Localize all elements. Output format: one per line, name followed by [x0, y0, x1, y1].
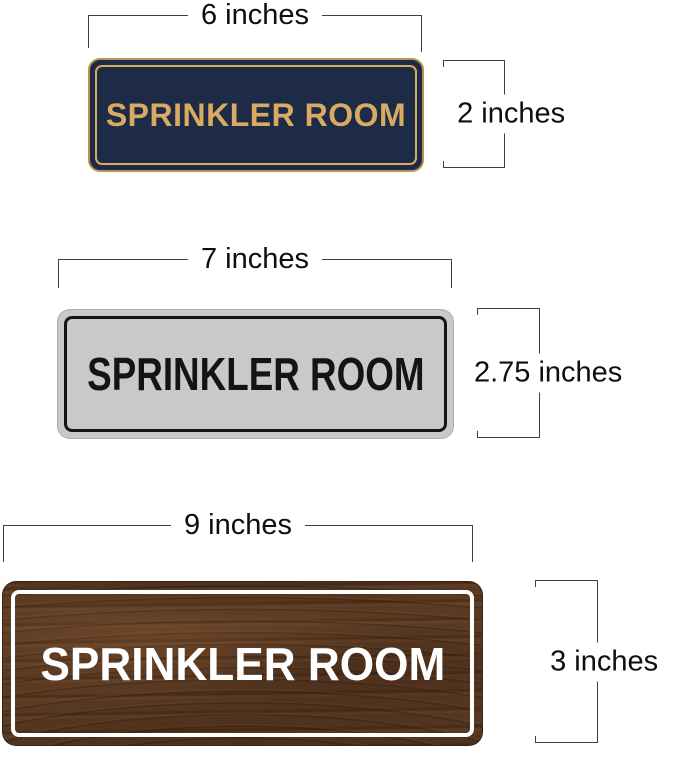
dimension-rail: [443, 60, 505, 61]
height-dimension-2in: 2 inches: [443, 60, 505, 168]
dimension-tick: [472, 525, 473, 562]
sign-text: SPRINKLER ROOM: [40, 641, 445, 687]
sign-size-comparison-diagram: 6 inches SPRINKLER ROOM 2 inches 7 inche…: [0, 0, 679, 757]
dimension-tick: [451, 259, 452, 288]
dimension-line-segment: [322, 15, 422, 16]
height-dimension-label: 2.75 inches: [467, 354, 629, 393]
sprinkler-sign-wood: SPRINKLER ROOM: [3, 582, 482, 745]
height-dimension-2-75in: 2.75 inches: [477, 308, 540, 438]
sprinkler-sign-silver: SPRINKLER ROOM: [58, 310, 453, 438]
dimension-rail: [443, 167, 505, 168]
width-dimension-label: 7 inches: [188, 245, 322, 274]
width-dimension-label: 6 inches: [188, 1, 322, 30]
dimension-tick: [3, 525, 4, 562]
width-dimension-7in: 7 inches: [58, 246, 452, 273]
dimension-line-segment: [58, 259, 188, 260]
sign-text: SPRINKLER ROOM: [106, 99, 406, 131]
dimension-line-segment: [88, 15, 188, 16]
height-dimension-label: 3 inches: [543, 642, 665, 681]
dimension-tick: [58, 259, 59, 288]
width-dimension-6in: 6 inches: [88, 2, 422, 29]
width-dimension-label: 9 inches: [171, 511, 305, 540]
sign-text: SPRINKLER ROOM: [87, 351, 424, 397]
height-dimension-3in: 3 inches: [535, 580, 598, 743]
dimension-line-segment: [3, 525, 171, 526]
dimension-rail: [535, 742, 598, 743]
width-dimension-9in: 9 inches: [3, 512, 473, 539]
dimension-tick: [421, 15, 422, 52]
dimension-line-segment: [322, 259, 452, 260]
dimension-rail: [477, 308, 540, 309]
dimension-rail: [477, 437, 540, 438]
dimension-tick: [88, 15, 89, 48]
height-dimension-label: 2 inches: [450, 95, 572, 134]
sprinkler-sign-navy: SPRINKLER ROOM: [88, 58, 424, 172]
dimension-rail: [535, 580, 598, 581]
dimension-line-segment: [305, 525, 473, 526]
